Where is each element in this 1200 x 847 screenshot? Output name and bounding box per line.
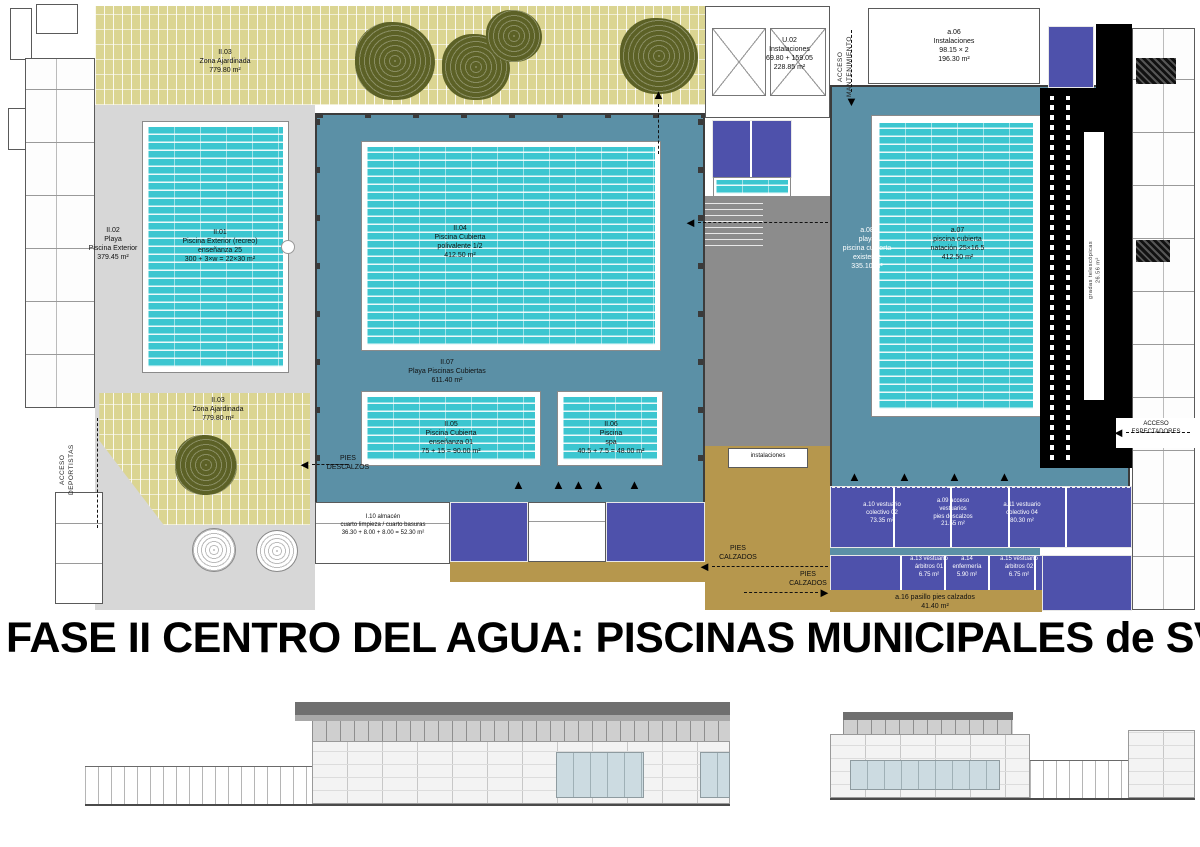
label-playa-a08: a.08 playa piscina cubierta existente 33… [834,226,900,271]
arrow-up-icon: ▲ [592,478,605,491]
vestuarios-corner [1042,555,1132,611]
corridor-rooms [712,120,792,178]
north-black-room [1096,24,1132,90]
route-dash [744,592,818,593]
label-playa-cubiertas: II.07 Playa Piscinas Cubiertas 611.40 m² [372,358,522,385]
route-dash [658,104,659,154]
arrow-left-icon: ◄ [698,560,711,573]
boundary-dash [97,418,98,528]
arrow-left-icon: ◄ [298,458,311,471]
column-row [315,115,320,509]
stair-treads [705,200,763,246]
arrow-up-icon: ▲ [552,478,565,491]
bleacher-rail [1066,96,1070,460]
label-enfermeria: a.14 enfermería 5.90 m² [946,556,988,579]
bleacher-rail [1050,96,1054,460]
ground-line [830,798,1195,800]
site-outbuilding [10,8,32,60]
label-instalaciones-box: instalaciones [730,453,806,461]
elevation-clerestory [843,720,1013,734]
elevations-group [0,680,1200,830]
label-acceso-deportistas: ACCESO DEPORTISTAS [58,428,76,512]
label-pies-calzados-1: PIES CALZADOS [710,544,766,562]
east-dark-room [1136,58,1176,84]
site-outbuilding [36,4,78,34]
elevation-roof [295,702,730,715]
elevation-roof [843,712,1013,720]
footbath [714,178,790,196]
label-instalaciones-a06: a.06 Instalaciones 98.15 × 2 196.30 m² [914,28,994,64]
arrow-up-icon: ▲ [512,478,525,491]
label-piscina-ensenanza: II.05 Piscina Cubierta enseñanza 01 75 +… [396,420,506,456]
elevation-clerestory [312,721,730,741]
label-instalaciones-u02: U.02 Instalaciones 69.80 + 159.05 228.85… [742,36,837,72]
label-garden-top: II.03 Zona Ajardinada 779.80 m² [160,48,290,75]
west-annex [8,108,26,150]
arrow-up-icon: ▲ [898,470,911,483]
route-dash-white [832,487,1130,488]
pies-calzados-band [450,562,705,582]
elevation-wall [312,741,730,804]
route-dash [698,222,828,223]
label-pasillo-calzados: a.16 pasillo pies calzados 41.40 m² [852,593,1018,611]
tree-icon [175,435,237,495]
ground-line [85,804,730,806]
deck-sliver [830,548,1040,555]
vestibule-east [606,502,705,562]
elevation-window [556,752,644,798]
vestibule-west [450,502,528,562]
label-piscina-exterior: II.01 Piscina Exterior (recreo) enseñanz… [150,228,290,264]
label-garden-bottom: II.03 Zona Ajardinada 779.80 m² [158,396,278,423]
arrow-up-icon: ▲ [628,478,641,491]
sheet-title: FASE II CENTRO DEL AGUA: PISCINAS MUNICI… [6,614,1200,663]
plan-tree-icon [256,530,298,572]
label-vestuario-a10: a.10 vestuario colectivo 02 73.35 m² [846,502,918,525]
floor-plan-sheet: ◄ ▲ ▼ ◄ ◄ ► ◄ ▲ ▲ ▲ ▲ ▲ ▲ ▲ ▲ ▲ II.03 Zo… [0,0,1200,847]
arrow-up-icon: ▲ [572,478,585,491]
north-purple-room [1048,26,1094,88]
elevation-fence [1030,760,1128,799]
tree-icon [355,22,435,100]
elevation-window [850,760,1000,790]
plan-tree-icon [192,528,236,572]
label-acceso-espectadores: ACCESO ESPECTADORES [1118,421,1194,437]
column-row [317,113,703,118]
tree-icon [620,18,698,94]
elevation-fence [85,766,312,805]
arrow-up-icon: ▲ [998,470,1011,483]
label-piscina-cubierta: II.04 Piscina Cubierta polivalente 1/2 4… [395,224,525,260]
arrow-left-icon: ◄ [684,216,697,229]
route-dash [712,566,828,567]
vestibule-core [528,502,606,562]
arrow-up-icon: ▲ [652,88,665,101]
east-dark-room [1136,240,1170,262]
label-arbitros-2: a.15 vestuario árbitros 02 6.75 m² [990,556,1048,579]
arrow-up-icon: ▲ [948,470,961,483]
column-row [698,115,703,509]
east-building [1132,28,1195,610]
label-pies-calzados-2: PIES CALZADOS [780,570,836,588]
elevation-block [1128,730,1195,798]
label-vestuario-a11: a.11 vestuario colectivo 04 80.30 m² [986,502,1058,525]
label-almacen: I.10 almacén cuarto limpieza / cuarto ba… [316,514,450,537]
label-playa-exterior: II.02 Playa Piscina Exterior 379.45 m² [78,226,148,262]
label-piscina-natacion: a.07 piscina cubierta natación 25×16.5 4… [900,226,1015,262]
label-acceso-mantenimiento: ACCESO MANTENIMIENTO [836,28,854,106]
label-piscina-spa: II.06 Piscina spa 40.5 + 7.5 = 48.00 m² [576,420,646,456]
arrow-up-icon: ▲ [848,470,861,483]
label-gradas: gradas telescópicas 26.56 m² [1088,180,1103,360]
wall-line [1065,487,1067,547]
label-pies-descalzos: PIES DESCALZOS [318,454,378,472]
tree-icon [486,10,542,62]
label-acceso-vestuarios: a.09 acceso vestuarios pies descalzos 21… [922,498,984,529]
wall-line [750,121,752,177]
elevation-window [700,752,730,798]
